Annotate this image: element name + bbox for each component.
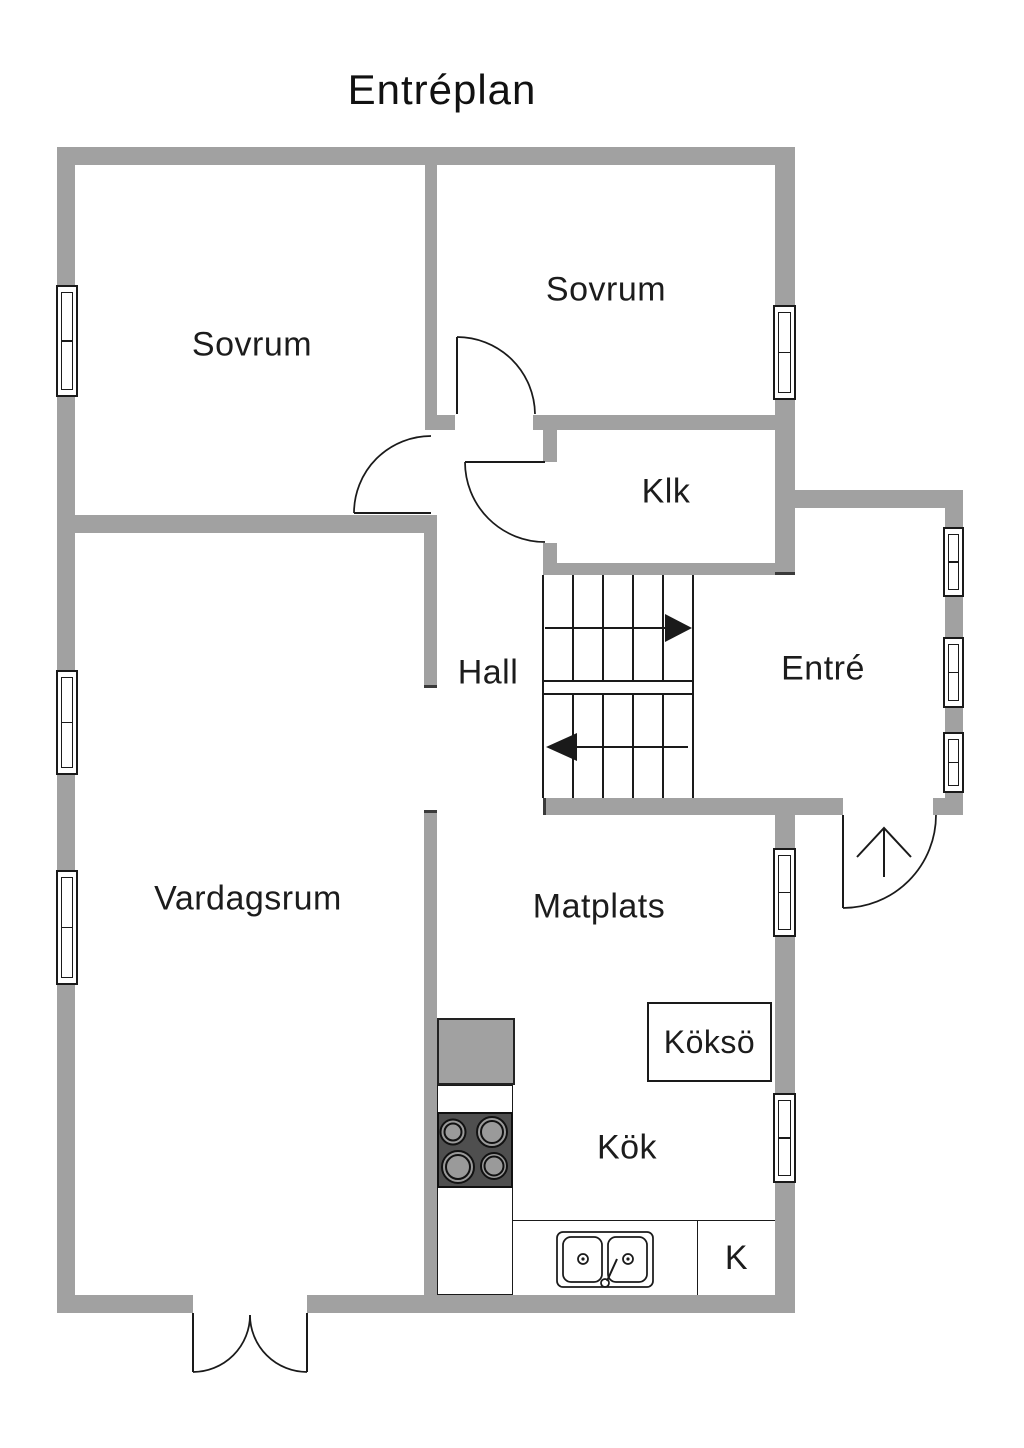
- room-label-vardagsrum: Vardagsrum: [154, 880, 342, 919]
- room-label-entre: Entré: [781, 650, 865, 689]
- kitchen-sink: [557, 1232, 653, 1287]
- room-label-sovrum-right: Sovrum: [546, 271, 666, 310]
- room-label-hall: Hall: [458, 654, 519, 693]
- stairs-up-arrow: [545, 614, 692, 642]
- floor-plan: Entréplan K Köksö: [0, 0, 1024, 1448]
- room-label-sovrum-left: Sovrum: [192, 326, 312, 365]
- door-patio-double: [193, 1313, 307, 1372]
- room-label-klk: Klk: [642, 473, 691, 512]
- stairs-down-arrow: [546, 733, 688, 761]
- staircase: [543, 575, 693, 798]
- stove-burners: [441, 1117, 508, 1183]
- room-label-matplats: Matplats: [533, 888, 666, 927]
- plan-linework: [0, 0, 1024, 1448]
- door-bedroom1: [354, 436, 431, 513]
- door-klk: [465, 462, 545, 542]
- room-label-kok: Kök: [597, 1129, 657, 1168]
- door-bedroom2: [457, 337, 535, 414]
- entrance-direction-arrow: [857, 828, 911, 877]
- door-entrance: [843, 815, 936, 908]
